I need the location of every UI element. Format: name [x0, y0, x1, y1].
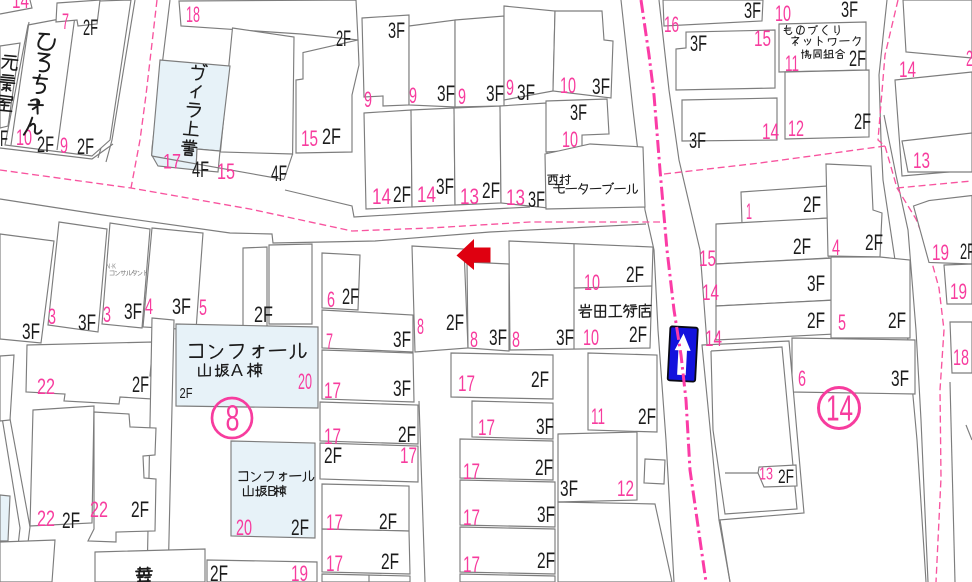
- svg-text:12: 12: [788, 116, 804, 141]
- svg-text:18: 18: [953, 345, 969, 370]
- svg-text:10: 10: [562, 127, 578, 152]
- svg-text:6: 6: [798, 366, 806, 391]
- svg-text:3F: 3F: [537, 502, 555, 527]
- svg-text:2F: 2F: [291, 515, 309, 540]
- svg-text:17: 17: [400, 443, 417, 468]
- svg-text:3F: 3F: [486, 81, 504, 106]
- svg-text:3F: 3F: [528, 187, 545, 212]
- svg-text:15: 15: [217, 159, 235, 184]
- svg-text:3F: 3F: [560, 476, 578, 501]
- svg-text:4: 4: [832, 235, 840, 260]
- svg-text:2F: 2F: [322, 124, 341, 149]
- svg-text:20: 20: [236, 515, 252, 540]
- svg-text:3: 3: [48, 304, 56, 329]
- svg-text:5: 5: [199, 295, 207, 320]
- svg-text:15: 15: [754, 26, 771, 51]
- svg-text:10: 10: [583, 325, 599, 350]
- svg-text:7: 7: [62, 9, 69, 34]
- svg-text:2F: 2F: [793, 234, 811, 259]
- svg-text:2F: 2F: [865, 230, 883, 255]
- svg-text:2: 2: [966, 46, 972, 71]
- svg-text:3F: 3F: [570, 100, 587, 125]
- svg-text:4F: 4F: [192, 157, 209, 182]
- svg-text:2F: 2F: [626, 262, 644, 287]
- svg-text:7: 7: [326, 329, 333, 354]
- svg-text:2F: 2F: [62, 508, 80, 533]
- svg-text:2F: 2F: [180, 386, 193, 402]
- svg-text:9: 9: [458, 84, 466, 109]
- svg-text:1: 1: [746, 199, 752, 224]
- svg-text:8: 8: [512, 327, 520, 352]
- svg-text:3F: 3F: [690, 31, 707, 56]
- svg-text:3F: 3F: [744, 0, 761, 23]
- svg-text:2F: 2F: [803, 192, 821, 217]
- svg-text:10: 10: [584, 270, 600, 295]
- svg-text:2F: 2F: [638, 404, 656, 429]
- svg-text:3F: 3F: [388, 18, 405, 43]
- svg-text:2F: 2F: [531, 367, 549, 392]
- svg-text:10: 10: [16, 125, 32, 150]
- svg-text:3F: 3F: [436, 174, 454, 199]
- svg-text:4: 4: [145, 294, 153, 319]
- svg-text:2F: 2F: [77, 134, 94, 159]
- svg-text:3F: 3F: [536, 414, 554, 439]
- svg-text:F: F: [0, 126, 8, 151]
- svg-text:13: 13: [506, 185, 525, 210]
- svg-text:2F: 2F: [446, 310, 464, 335]
- svg-text:9: 9: [506, 75, 514, 100]
- svg-text:2F: 2F: [393, 182, 411, 207]
- svg-text:17: 17: [478, 415, 495, 440]
- svg-text:17: 17: [463, 552, 480, 577]
- svg-text:2F: 2F: [342, 284, 359, 309]
- svg-text:2F: 2F: [629, 322, 647, 347]
- svg-text:11: 11: [785, 51, 799, 76]
- svg-text:2F: 2F: [381, 549, 399, 574]
- svg-text:22: 22: [90, 497, 108, 522]
- svg-text:16: 16: [664, 12, 679, 37]
- svg-text:2F: 2F: [324, 443, 342, 468]
- svg-text:14: 14: [705, 326, 722, 351]
- svg-text:3F: 3F: [393, 327, 411, 352]
- svg-text:17: 17: [326, 551, 343, 576]
- svg-text:9: 9: [60, 133, 68, 158]
- svg-text:2F: 2F: [482, 178, 500, 203]
- svg-text:17: 17: [163, 150, 181, 174]
- svg-text:20: 20: [298, 369, 312, 394]
- svg-text:2F: 2F: [210, 561, 228, 582]
- svg-text:6: 6: [327, 287, 335, 312]
- svg-text:9: 9: [364, 87, 372, 112]
- svg-text:A: A: [231, 360, 243, 380]
- svg-text:3F: 3F: [592, 74, 610, 99]
- svg-text:19: 19: [291, 561, 308, 582]
- svg-text:22: 22: [37, 506, 55, 531]
- svg-text:3: 3: [103, 302, 111, 327]
- svg-text:3F: 3F: [22, 319, 40, 344]
- svg-text:2F: 2F: [807, 308, 825, 333]
- svg-text:8: 8: [470, 327, 478, 352]
- svg-text:13: 13: [913, 148, 930, 173]
- svg-text:14: 14: [702, 280, 719, 305]
- svg-text:9: 9: [409, 83, 417, 108]
- svg-text:2F: 2F: [254, 302, 273, 327]
- svg-text:2F: 2F: [379, 509, 397, 534]
- svg-text:3F: 3F: [891, 366, 909, 391]
- svg-text:2F: 2F: [778, 467, 794, 488]
- svg-text:17: 17: [463, 459, 480, 484]
- svg-text:3F: 3F: [78, 310, 96, 335]
- svg-text:13: 13: [460, 184, 479, 209]
- svg-text:8: 8: [226, 399, 240, 439]
- svg-text:3F: 3F: [689, 128, 706, 153]
- svg-text:14: 14: [826, 389, 853, 429]
- svg-text:2F: 2F: [37, 132, 54, 157]
- svg-text:14: 14: [417, 182, 436, 207]
- svg-text:2F: 2F: [849, 46, 866, 71]
- svg-text:3F: 3F: [841, 0, 858, 22]
- svg-text:17: 17: [463, 505, 480, 530]
- svg-text:2F: 2F: [960, 239, 972, 264]
- svg-text:14: 14: [762, 119, 779, 144]
- svg-text:14: 14: [372, 184, 391, 209]
- svg-text:17: 17: [324, 378, 341, 403]
- svg-text:2F: 2F: [131, 497, 149, 522]
- svg-text:2F: 2F: [336, 26, 351, 51]
- svg-text:2F: 2F: [888, 308, 906, 333]
- svg-text:3F: 3F: [556, 325, 574, 350]
- svg-text:3F: 3F: [124, 299, 142, 324]
- svg-text:13: 13: [759, 464, 773, 484]
- svg-text:B: B: [267, 483, 277, 500]
- svg-text:4F: 4F: [271, 161, 287, 186]
- svg-text:14: 14: [12, 0, 29, 13]
- svg-text:8: 8: [417, 314, 424, 339]
- svg-text:12: 12: [617, 476, 634, 501]
- svg-text:10: 10: [560, 73, 576, 98]
- svg-text:2F: 2F: [537, 548, 555, 573]
- svg-text:3F: 3F: [393, 376, 411, 401]
- svg-text:18: 18: [186, 2, 200, 27]
- svg-text:3F: 3F: [437, 81, 455, 106]
- svg-text:22: 22: [37, 374, 55, 399]
- svg-text:2F: 2F: [854, 109, 871, 134]
- svg-text:17: 17: [458, 371, 475, 396]
- svg-text:3F: 3F: [172, 294, 191, 319]
- svg-text:11: 11: [591, 404, 605, 429]
- svg-text:17: 17: [326, 510, 343, 535]
- svg-text:3F: 3F: [489, 325, 507, 350]
- svg-text:2F: 2F: [535, 455, 553, 480]
- svg-text:14: 14: [899, 57, 916, 82]
- svg-text:5: 5: [838, 310, 846, 335]
- svg-text:19: 19: [932, 240, 949, 265]
- svg-text:2F: 2F: [83, 15, 98, 40]
- svg-text:2F: 2F: [132, 372, 149, 397]
- svg-text:10: 10: [775, 1, 791, 26]
- svg-text:19: 19: [950, 279, 967, 304]
- svg-text:3F: 3F: [807, 271, 825, 296]
- svg-text:3F: 3F: [517, 80, 535, 105]
- svg-text:15: 15: [699, 246, 716, 271]
- svg-text:15: 15: [301, 126, 318, 151]
- svg-text:N·K: N·K: [106, 262, 116, 271]
